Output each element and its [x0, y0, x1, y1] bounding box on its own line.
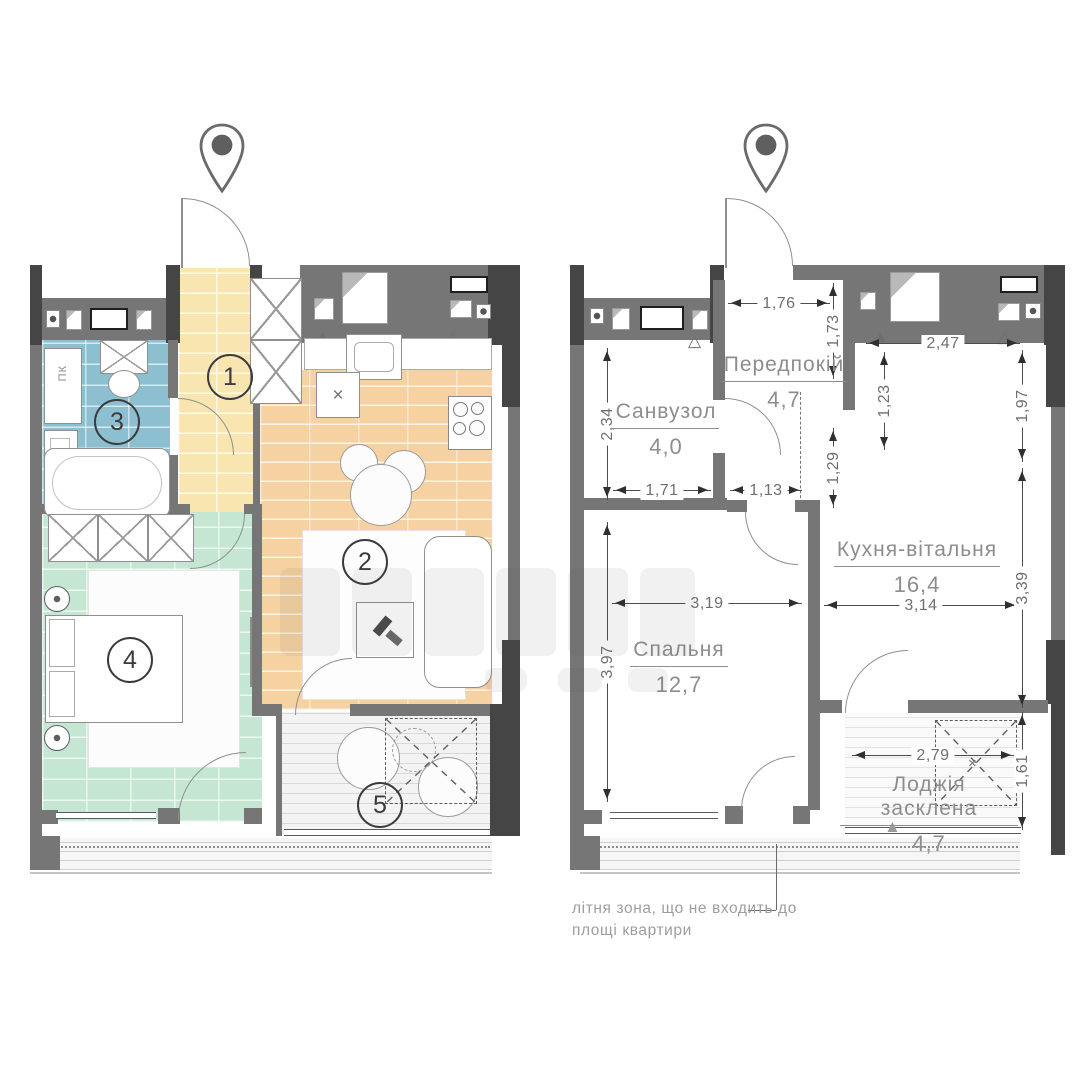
watermark: [558, 668, 602, 692]
facade-line: [30, 872, 492, 874]
watermark: [496, 568, 556, 656]
balcony-band: [40, 838, 492, 870]
kitchen-cabinet: ×: [316, 372, 360, 418]
wall-segment: [570, 836, 600, 870]
wardrobe-section: [98, 514, 148, 562]
dim-loggia-width: 2,79: [852, 755, 1014, 756]
room-area: 12,7: [598, 672, 760, 698]
watermark: [280, 568, 340, 656]
vent-triangle-icon: △: [688, 332, 701, 349]
wall-segment: [727, 500, 747, 512]
duct-box: [1000, 276, 1038, 293]
vent-box: [66, 310, 82, 330]
vent-box: [450, 300, 472, 318]
dashed-cross: [386, 719, 476, 803]
dim-label: 1,97: [1014, 384, 1032, 427]
room-name: Санвузол: [613, 400, 720, 429]
dim-label: 1,23: [876, 379, 894, 422]
dim-label: 1,76: [757, 295, 800, 313]
watermark: [640, 568, 695, 656]
room-marker-1: 1: [207, 354, 253, 400]
wall-segment: [30, 836, 60, 870]
balcony-dotted-line: [42, 846, 490, 848]
vent-box: [612, 308, 630, 330]
nightstand-lamp: [44, 725, 70, 751]
wall-segment: [793, 265, 855, 280]
wall-segment: [1051, 690, 1065, 855]
wall-segment: [276, 710, 282, 836]
dim-kitchen-width: 3,14: [824, 605, 1018, 606]
wall-segment: [793, 806, 810, 824]
vent-box: [998, 303, 1020, 321]
wall-segment: [584, 810, 602, 824]
dim-bathroom-bottom-width: 1,71: [613, 490, 711, 491]
hob-burner: [453, 422, 466, 435]
dim-label: 1,73: [825, 309, 843, 352]
washing-machine: ПК: [44, 348, 82, 424]
room-label-peredpokiy: Передпокій 4,7: [713, 353, 855, 413]
shaft-box: [590, 308, 604, 324]
vent-box: [890, 272, 940, 322]
wall-segment: [1044, 265, 1065, 345]
wardrobe-section: [250, 340, 302, 404]
room-marker-4: 4: [107, 637, 153, 683]
watermark: [424, 568, 484, 656]
hob-burner: [453, 402, 468, 417]
dim-kitchen-right-height-1: 1,97: [1022, 350, 1023, 462]
toilet-bowl: [108, 370, 140, 398]
room-name: Лоджія засклена: [840, 773, 1018, 826]
toilet-tank: [100, 340, 148, 374]
wall-segment: [252, 504, 262, 716]
shaft-box: [46, 310, 60, 328]
dining-table: [350, 464, 412, 526]
vent-box: [692, 310, 708, 330]
room-name: Передпокій: [721, 353, 848, 382]
wall-segment: [30, 265, 42, 345]
dim-loggia-height: 1,61: [1022, 712, 1023, 830]
bathtub-basin: [52, 456, 162, 510]
dim-label: 2,47: [921, 335, 964, 353]
door-leaf: [250, 617, 252, 687]
vent-box: [136, 310, 152, 330]
wardrobe-section: [148, 514, 194, 562]
cross-mark: ×: [332, 386, 343, 405]
room-area: 4,7: [713, 387, 855, 413]
pillow: [49, 619, 75, 667]
dim-label: 1,13: [744, 482, 787, 500]
cross-mark: ×: [968, 756, 977, 771]
watermark: [628, 668, 668, 692]
vent-box: [314, 298, 334, 320]
washer-label: ПК: [57, 365, 69, 381]
vent-box: [860, 292, 876, 310]
dim-kitchen-right-height-2: 3,39: [1022, 468, 1023, 708]
left-plan: ▲ ▲ △ ПК ×: [0, 0, 540, 1079]
dim-label: 2,79: [911, 747, 954, 765]
room-area: 4,7: [840, 831, 1018, 857]
location-pin-icon: [740, 122, 792, 194]
vent-box: [342, 272, 388, 324]
facade-line: [580, 872, 1020, 874]
watermark: [352, 568, 412, 656]
room-area: 16,4: [828, 572, 1006, 598]
hob-burner: [471, 402, 484, 415]
duct-box: [450, 276, 488, 293]
window: [56, 812, 156, 819]
dim-label: 1,71: [640, 482, 683, 500]
kitchen-sink-basin: [354, 342, 394, 372]
floorplan-canvas: ▲ ▲ △ ПК ×: [0, 0, 1080, 1079]
dim-label: 3,14: [899, 597, 942, 615]
room-name: Кухня-вітальня: [834, 538, 1000, 567]
watermark: [568, 568, 628, 656]
room-marker-3: 3: [94, 399, 140, 445]
duct-box: [640, 306, 684, 330]
wall-segment: [488, 265, 520, 345]
dim-hall-bottom-height: 1,29: [833, 428, 834, 508]
wall-segment: [30, 265, 42, 857]
duct-box: [90, 308, 128, 330]
pillow: [49, 671, 75, 717]
room-marker-5: 5: [357, 782, 403, 828]
dim-kitchen-left-height: 1,23: [884, 352, 885, 450]
note-line-1: літня зона, що не входить до: [572, 898, 812, 920]
wall-segment: [570, 265, 584, 857]
room-label-kitchen: Кухня-вітальня 16,4: [828, 538, 1006, 598]
window: [610, 812, 718, 819]
wall-segment: [808, 500, 820, 810]
wall-segment: [908, 700, 1048, 713]
wardrobe-section: [48, 514, 98, 562]
shaft-box: [476, 304, 491, 319]
wall-segment: [490, 704, 520, 836]
note-line-2: площі квартири: [572, 920, 812, 942]
nightstand-lamp: [44, 586, 70, 612]
dim-kitchen-top-width: 2,47: [866, 343, 1020, 344]
entrance-door-arc: [182, 198, 250, 266]
wall-segment: [168, 340, 178, 398]
wall-segment: [570, 265, 584, 345]
wall-segment: [244, 808, 262, 824]
wall-segment: [820, 700, 842, 713]
wall-segment: [502, 345, 520, 407]
watermark: [485, 668, 527, 692]
wall-segment: [166, 265, 180, 343]
hob-burner: [469, 420, 485, 436]
wardrobe-section: [250, 278, 302, 340]
wall-segment: [253, 398, 260, 504]
room-label-loggia: Лоджія засклена 4,7: [840, 773, 1018, 857]
location-pin-icon: [196, 122, 248, 194]
dim-label: 1,29: [825, 446, 843, 489]
shaft-box: [1025, 303, 1041, 319]
dim-hall-top-width: 1,76: [728, 303, 830, 304]
window: [284, 829, 490, 836]
wall-segment: [1046, 345, 1065, 407]
wall-segment: [158, 808, 180, 824]
wall-segment: [350, 704, 492, 716]
dim-hall-bottom-width: 1,13: [730, 490, 802, 491]
room-area: 4,0: [596, 434, 736, 460]
dim-label: 3,39: [1014, 566, 1032, 609]
note-text: літня зона, що не входить до площі кварт…: [572, 898, 812, 943]
